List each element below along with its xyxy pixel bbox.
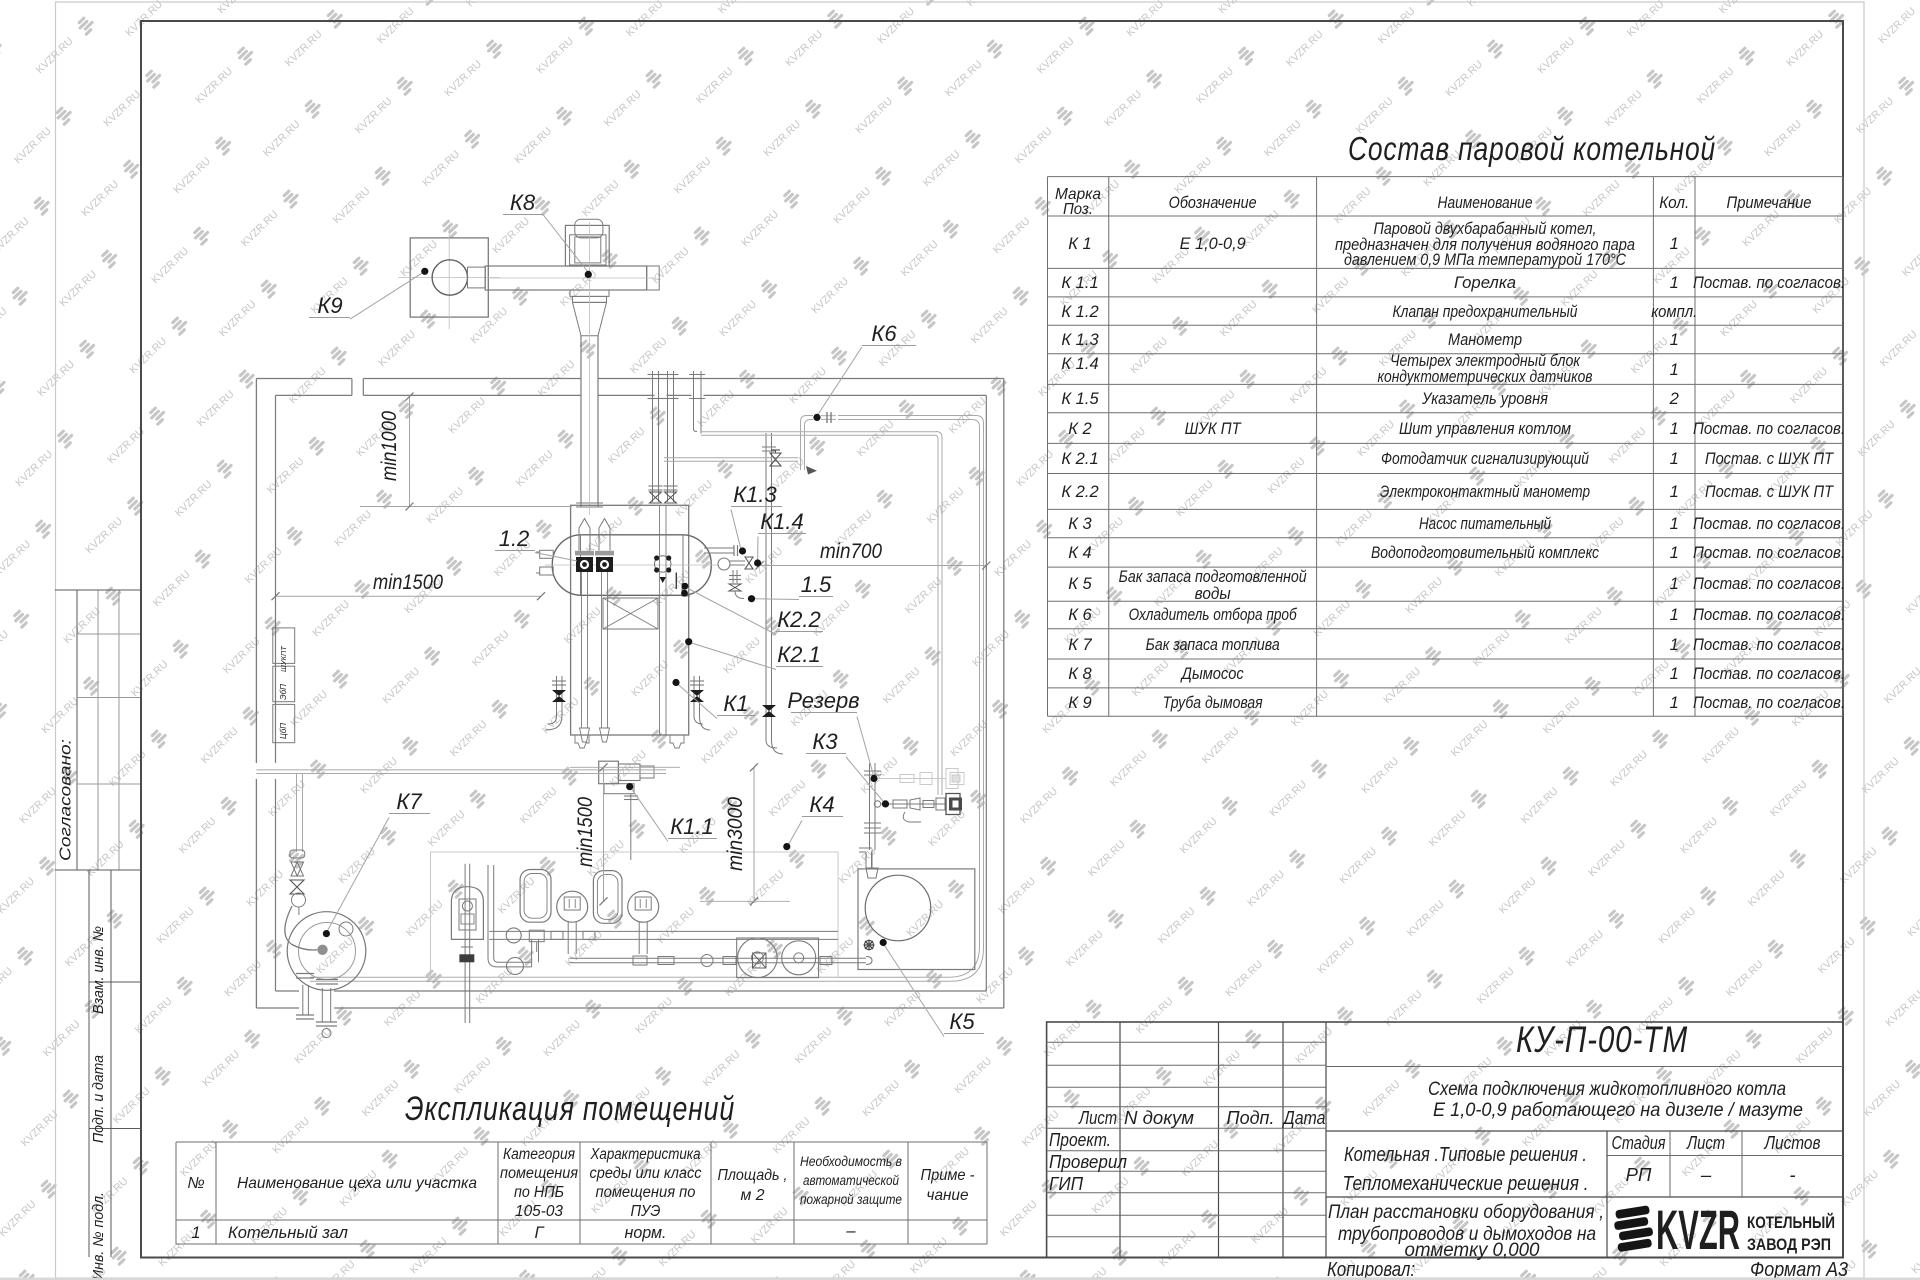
svg-text:Бак запаса топлива: Бак запаса топлива [1146, 636, 1280, 654]
svg-text:К 5: К 5 [1068, 575, 1092, 593]
svg-text:Лист: Лист [1686, 1132, 1725, 1153]
svg-text:К 6: К 6 [1068, 606, 1092, 624]
svg-text:Фотодатчик сигнализирующий: Фотодатчик сигнализирующий [1381, 450, 1589, 468]
svg-text:К 8: К 8 [1068, 665, 1092, 683]
svg-text:РП: РП [1626, 1164, 1652, 1185]
svg-text:Формат А3: Формат А3 [1750, 1259, 1848, 1280]
svg-text:среды или класс: среды или класс [590, 1165, 702, 1182]
svg-text:К2.2: К2.2 [777, 607, 821, 632]
svg-text:Копировал:: Копировал: [1327, 1259, 1415, 1280]
svg-text:Бак запаса подготовленной: Бак запаса подготовленной [1119, 568, 1307, 586]
svg-text:чание: чание [927, 1187, 969, 1204]
svg-text:1: 1 [1670, 235, 1679, 253]
svg-text:Проверил: Проверил [1049, 1151, 1128, 1172]
svg-text:Котельная .Типовые решения .: Котельная .Типовые решения . [1344, 1144, 1587, 1166]
svg-text:К1.3: К1.3 [733, 482, 777, 507]
svg-text:норм.: норм. [625, 1224, 667, 1242]
svg-text:Постав. с ШУК ПТ: Постав. с ШУК ПТ [1705, 483, 1835, 501]
svg-text:1: 1 [191, 1224, 200, 1242]
svg-text:пожарной защите: пожарной защите [800, 1191, 902, 1207]
svg-text:Дата: Дата [1282, 1107, 1326, 1128]
svg-text:К8: К8 [510, 190, 536, 215]
svg-text:1: 1 [1670, 544, 1679, 562]
svg-text:Клапан предохранительный: Клапан предохранительный [1393, 303, 1578, 321]
svg-text:Характеристика: Характеристика [590, 1146, 701, 1163]
svg-text:min700: min700 [820, 540, 882, 563]
svg-text:воды: воды [1195, 585, 1231, 603]
svg-text:К 7: К 7 [1068, 636, 1092, 654]
svg-text:–: – [1700, 1164, 1712, 1185]
svg-text:План расстановки оборудования: План расстановки оборудования , [1328, 1201, 1604, 1223]
svg-text:К7: К7 [396, 789, 422, 814]
svg-text:КУ-П-00-ТМ: КУ-П-00-ТМ [1516, 1019, 1688, 1060]
svg-text:помещения: помещения [500, 1165, 578, 1182]
svg-text:К 1.2: К 1.2 [1061, 303, 1098, 321]
svg-text:Резерв: Резерв [787, 688, 859, 713]
svg-text:min1500: min1500 [373, 571, 443, 594]
svg-text:помещения по: помещения по [596, 1184, 696, 1201]
svg-text:1.5: 1.5 [801, 572, 832, 597]
svg-text:ЦбП: ЦбП [278, 722, 288, 739]
svg-text:Указатель уровня: Указатель уровня [1421, 390, 1548, 408]
svg-text:Листов: Листов [1764, 1132, 1821, 1153]
svg-text:1: 1 [1670, 450, 1679, 468]
svg-text:кондуктометрических датчиков: кондуктометрических датчиков [1378, 368, 1593, 386]
svg-text:ШУК ПТ: ШУК ПТ [1185, 420, 1243, 438]
svg-text:К 2.2: К 2.2 [1061, 483, 1098, 501]
svg-text:Проект.: Проект. [1049, 1129, 1111, 1150]
svg-text:Водоподготовительный комплекс: Водоподготовительный комплекс [1371, 544, 1600, 562]
svg-text:min3000: min3000 [724, 797, 747, 871]
svg-text:1: 1 [1670, 420, 1679, 438]
svg-text:Котельный зал: Котельный зал [228, 1224, 348, 1242]
svg-text:Постав. по согласов.: Постав. по согласов. [1693, 274, 1845, 292]
svg-text:N докум: N докум [1124, 1107, 1194, 1128]
svg-text:К 1: К 1 [1068, 235, 1092, 253]
svg-text:1: 1 [1670, 694, 1679, 712]
svg-text:ГИП: ГИП [1049, 1173, 1084, 1194]
svg-text:Площадь ,: Площадь , [718, 1167, 788, 1184]
svg-text:№: № [187, 1175, 204, 1192]
svg-text:-: - [1789, 1164, 1795, 1185]
svg-text:К1.1: К1.1 [670, 814, 714, 839]
svg-text:К3: К3 [812, 729, 838, 754]
svg-text:105-03: 105-03 [515, 1203, 563, 1220]
svg-text:К1.4: К1.4 [760, 509, 804, 534]
svg-text:min1000: min1000 [378, 411, 401, 481]
svg-text:1: 1 [1670, 361, 1679, 379]
svg-text:Постав. по согласов.: Постав. по согласов. [1693, 420, 1845, 438]
svg-text:–: – [845, 1222, 856, 1240]
svg-text:К4: К4 [809, 792, 834, 817]
svg-text:ЗАВОД РЭП: ЗАВОД РЭП [1747, 1235, 1831, 1254]
svg-text:Подп. и дата: Подп. и дата [91, 1055, 107, 1143]
svg-text:Труба дымовая: Труба дымовая [1163, 694, 1263, 712]
svg-text:Приме -: Приме - [921, 1167, 975, 1184]
svg-text:2: 2 [1669, 390, 1679, 408]
svg-text:Постав. по согласов.: Постав. по согласов. [1693, 665, 1845, 683]
svg-text:Насос питательный: Насос питательный [1419, 515, 1551, 533]
svg-text:автоматической: автоматической [803, 1172, 899, 1188]
svg-text:К 2.1: К 2.1 [1061, 450, 1098, 468]
svg-text:1: 1 [1670, 575, 1679, 593]
svg-text:1: 1 [1670, 665, 1679, 683]
svg-text:Схема подключения жидкотопливн: Схема подключения жидкотопливного котла [1428, 1078, 1786, 1100]
svg-text:ШУКПТ: ШУКПТ [279, 645, 288, 672]
svg-text:Дымосос: Дымосос [1180, 665, 1244, 683]
svg-text:1: 1 [1670, 606, 1679, 624]
svg-text:Поз.: Поз. [1063, 201, 1093, 218]
svg-text:К9: К9 [317, 293, 342, 318]
svg-text:Постав. по согласов.: Постав. по согласов. [1693, 606, 1845, 624]
svg-text:KVZR: KVZR [1656, 1198, 1740, 1261]
svg-text:1: 1 [1670, 274, 1679, 292]
svg-text:Постав. по согласов.: Постав. по согласов. [1693, 515, 1845, 533]
svg-text:Подп.: Подп. [1227, 1107, 1275, 1128]
svg-text:Инв. № подл.: Инв. № подл. [91, 1192, 107, 1280]
svg-text:Необходимость в: Необходимость в [800, 1153, 902, 1169]
svg-text:К 4: К 4 [1068, 544, 1092, 562]
svg-text:Категория: Категория [503, 1146, 575, 1163]
svg-text:м 2: м 2 [741, 1187, 765, 1204]
svg-text:К2.1: К2.1 [777, 642, 821, 667]
svg-text:Согласовано:: Согласовано: [58, 739, 75, 861]
svg-text:К 9: К 9 [1068, 694, 1092, 712]
svg-text:Наименование цеха или участка: Наименование цеха или участка [237, 1175, 477, 1192]
svg-text:ПУЭ: ПУЭ [631, 1203, 661, 1220]
svg-text:Постав. по согласов.: Постав. по согласов. [1693, 544, 1845, 562]
svg-text:К 1.4: К 1.4 [1061, 355, 1098, 373]
svg-text:1: 1 [1670, 331, 1679, 349]
svg-text:1: 1 [1670, 636, 1679, 654]
svg-text:Электроконтактный манометр: Электроконтактный манометр [1380, 483, 1590, 501]
svg-text:отметку 0,000: отметку 0,000 [1405, 1239, 1540, 1261]
svg-text:Охладитель отбора проб: Охладитель отбора проб [1129, 606, 1298, 624]
svg-text:Взам. инв. №: Взам. инв. № [91, 926, 107, 1014]
svg-text:1.2: 1.2 [499, 526, 530, 551]
svg-text:Примечание: Примечание [1727, 193, 1812, 212]
svg-text:К 1.1: К 1.1 [1061, 274, 1098, 292]
svg-text:К6: К6 [871, 321, 897, 346]
svg-text:Постав. по согласов.: Постав. по согласов. [1693, 636, 1845, 654]
svg-text:Состав паровой котельной: Состав паровой котельной [1348, 130, 1716, 167]
svg-text:Лист: Лист [1078, 1107, 1117, 1128]
svg-text:компл.: компл. [1651, 303, 1697, 321]
svg-text:Шит управления котлом: Шит управления котлом [1399, 420, 1571, 438]
svg-text:К5: К5 [949, 1009, 975, 1034]
svg-text:Г: Г [535, 1224, 545, 1242]
svg-text:К1: К1 [723, 691, 748, 716]
svg-text:Тепломеханические решения .: Тепломеханические решения . [1343, 1173, 1589, 1195]
svg-text:К 1.3: К 1.3 [1061, 331, 1099, 349]
svg-text:Стадия: Стадия [1612, 1132, 1666, 1153]
svg-text:К 3: К 3 [1068, 515, 1092, 533]
svg-text:Постав. по согласов.: Постав. по согласов. [1693, 575, 1845, 593]
svg-text:ЭбП: ЭбП [278, 683, 288, 700]
svg-text:Е 1,0-0,9 работающего на дизе: Е 1,0-0,9 работающего на дизеле / мазуте [1433, 1099, 1803, 1121]
svg-text:КОТЕЛЬНЫЙ: КОТЕЛЬНЫЙ [1747, 1213, 1835, 1232]
svg-text:Кол.: Кол. [1659, 193, 1689, 212]
svg-text:Обозначение: Обозначение [1169, 193, 1257, 212]
svg-text:давлением 0,9 МПа температурой: давлением 0,9 МПа температурой 170°С [1344, 251, 1626, 269]
svg-text:Постав. с ШУК ПТ: Постав. с ШУК ПТ [1705, 450, 1835, 468]
svg-text:Горелка: Горелка [1454, 274, 1516, 292]
svg-text:по НПБ: по НПБ [514, 1184, 564, 1201]
svg-text:Манометр: Манометр [1448, 331, 1522, 349]
svg-text:min1500: min1500 [574, 797, 597, 867]
svg-text:К 2: К 2 [1068, 420, 1092, 438]
svg-text:Постав. по согласов.: Постав. по согласов. [1693, 694, 1845, 712]
svg-text:Экспликация помещений: Экспликация помещений [405, 1090, 735, 1128]
svg-text:1: 1 [1670, 483, 1679, 501]
svg-text:1: 1 [1670, 515, 1679, 533]
svg-text:К 1.5: К 1.5 [1061, 390, 1099, 408]
svg-text:Наименование: Наименование [1438, 193, 1533, 212]
svg-text:Е 1,0-0,9: Е 1,0-0,9 [1180, 235, 1246, 253]
